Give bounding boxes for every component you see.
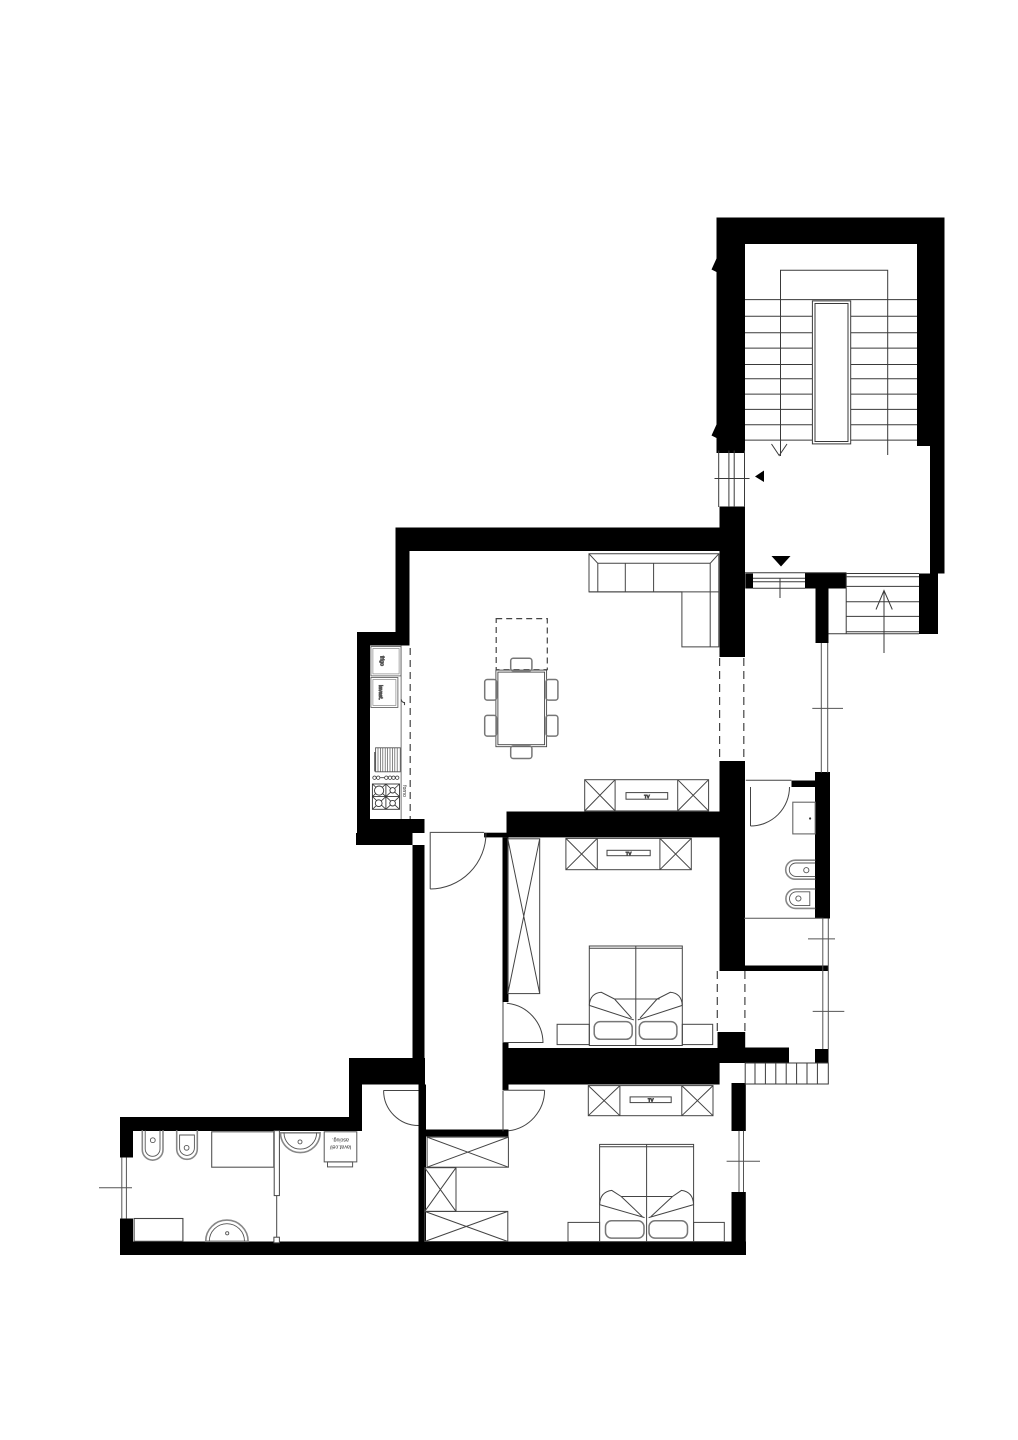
svg-text:TV: TV <box>626 851 632 856</box>
svg-text:lavast.: lavast. <box>377 685 383 700</box>
svg-text:lavat.cel/: lavat.cel/ <box>329 1144 351 1150</box>
svg-text:frigo: frigo <box>379 656 385 666</box>
svg-text:TV: TV <box>644 794 650 799</box>
svg-text:forno: forno <box>401 785 407 797</box>
svg-text:TV: TV <box>648 1098 654 1103</box>
svg-text:asciug.: asciug. <box>332 1137 349 1143</box>
